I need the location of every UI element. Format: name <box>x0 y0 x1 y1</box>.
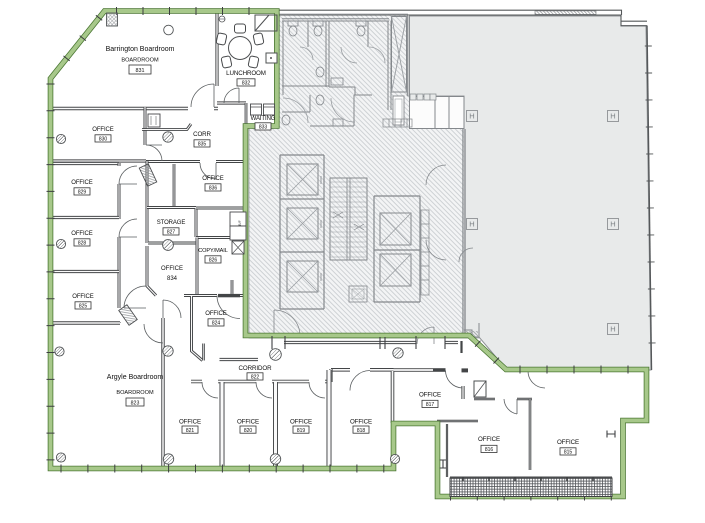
svg-text:OFFICE: OFFICE <box>237 419 259 426</box>
svg-text:Barrington Boardroom: Barrington Boardroom <box>106 46 175 53</box>
svg-text:OFFICE: OFFICE <box>350 419 372 426</box>
svg-text:OFFICE: OFFICE <box>557 439 579 446</box>
svg-text:817: 817 <box>426 402 435 408</box>
svg-text:OFFICE: OFFICE <box>71 180 92 186</box>
svg-text:818: 818 <box>357 428 366 434</box>
svg-text:OFFICE: OFFICE <box>72 294 93 300</box>
svg-text:H: H <box>469 112 474 121</box>
svg-text:824: 824 <box>212 321 221 327</box>
svg-text:BOARDROOM: BOARDROOM <box>116 390 154 396</box>
svg-text:COPY/MAIL: COPY/MAIL <box>198 248 228 254</box>
svg-text:CORR: CORR <box>193 131 211 138</box>
svg-text:825: 825 <box>79 304 88 310</box>
svg-text:831: 831 <box>136 68 145 74</box>
svg-text:BOARDROOM: BOARDROOM <box>121 58 159 64</box>
svg-text:H: H <box>610 220 615 229</box>
svg-text:H: H <box>610 325 615 334</box>
svg-text:821: 821 <box>186 428 195 434</box>
svg-text:832: 832 <box>242 81 251 87</box>
svg-text:OFFICE: OFFICE <box>478 436 500 443</box>
svg-text:826: 826 <box>209 258 218 264</box>
svg-text:OFFICE: OFFICE <box>419 392 441 399</box>
svg-text:833: 833 <box>259 125 268 131</box>
svg-text:STORAGE: STORAGE <box>157 220 186 226</box>
svg-text:820: 820 <box>244 428 253 434</box>
svg-text:B/F: B/F <box>238 220 242 225</box>
svg-text:819: 819 <box>297 428 306 434</box>
svg-text:815: 815 <box>564 450 573 456</box>
svg-text:CORRIDOR: CORRIDOR <box>239 365 273 372</box>
svg-text:829: 829 <box>78 190 87 196</box>
svg-text:OFFICE: OFFICE <box>202 176 223 182</box>
svg-text:H: H <box>469 220 474 229</box>
svg-text:816: 816 <box>485 447 494 453</box>
svg-text:H: H <box>610 112 615 121</box>
svg-text:835: 835 <box>198 142 207 148</box>
svg-text:LUNCHROOM: LUNCHROOM <box>226 70 266 77</box>
svg-text:OFFICE: OFFICE <box>290 419 312 426</box>
svg-text:830: 830 <box>99 137 108 143</box>
svg-text:OFFICE: OFFICE <box>71 231 92 237</box>
svg-text:827: 827 <box>167 230 176 236</box>
svg-text:OFFICE: OFFICE <box>179 419 201 426</box>
svg-text:OFFICE: OFFICE <box>161 266 183 272</box>
svg-text:WAITING: WAITING <box>251 116 276 122</box>
svg-text:828: 828 <box>78 241 87 247</box>
svg-text:822: 822 <box>251 375 260 381</box>
svg-text:834: 834 <box>167 276 178 282</box>
svg-text:823: 823 <box>131 400 140 406</box>
svg-text:OFFICE: OFFICE <box>92 127 113 133</box>
svg-text:836: 836 <box>209 186 218 192</box>
svg-text:OFFICE: OFFICE <box>205 311 226 317</box>
svg-text:Argyle Boardroom: Argyle Boardroom <box>107 374 164 381</box>
